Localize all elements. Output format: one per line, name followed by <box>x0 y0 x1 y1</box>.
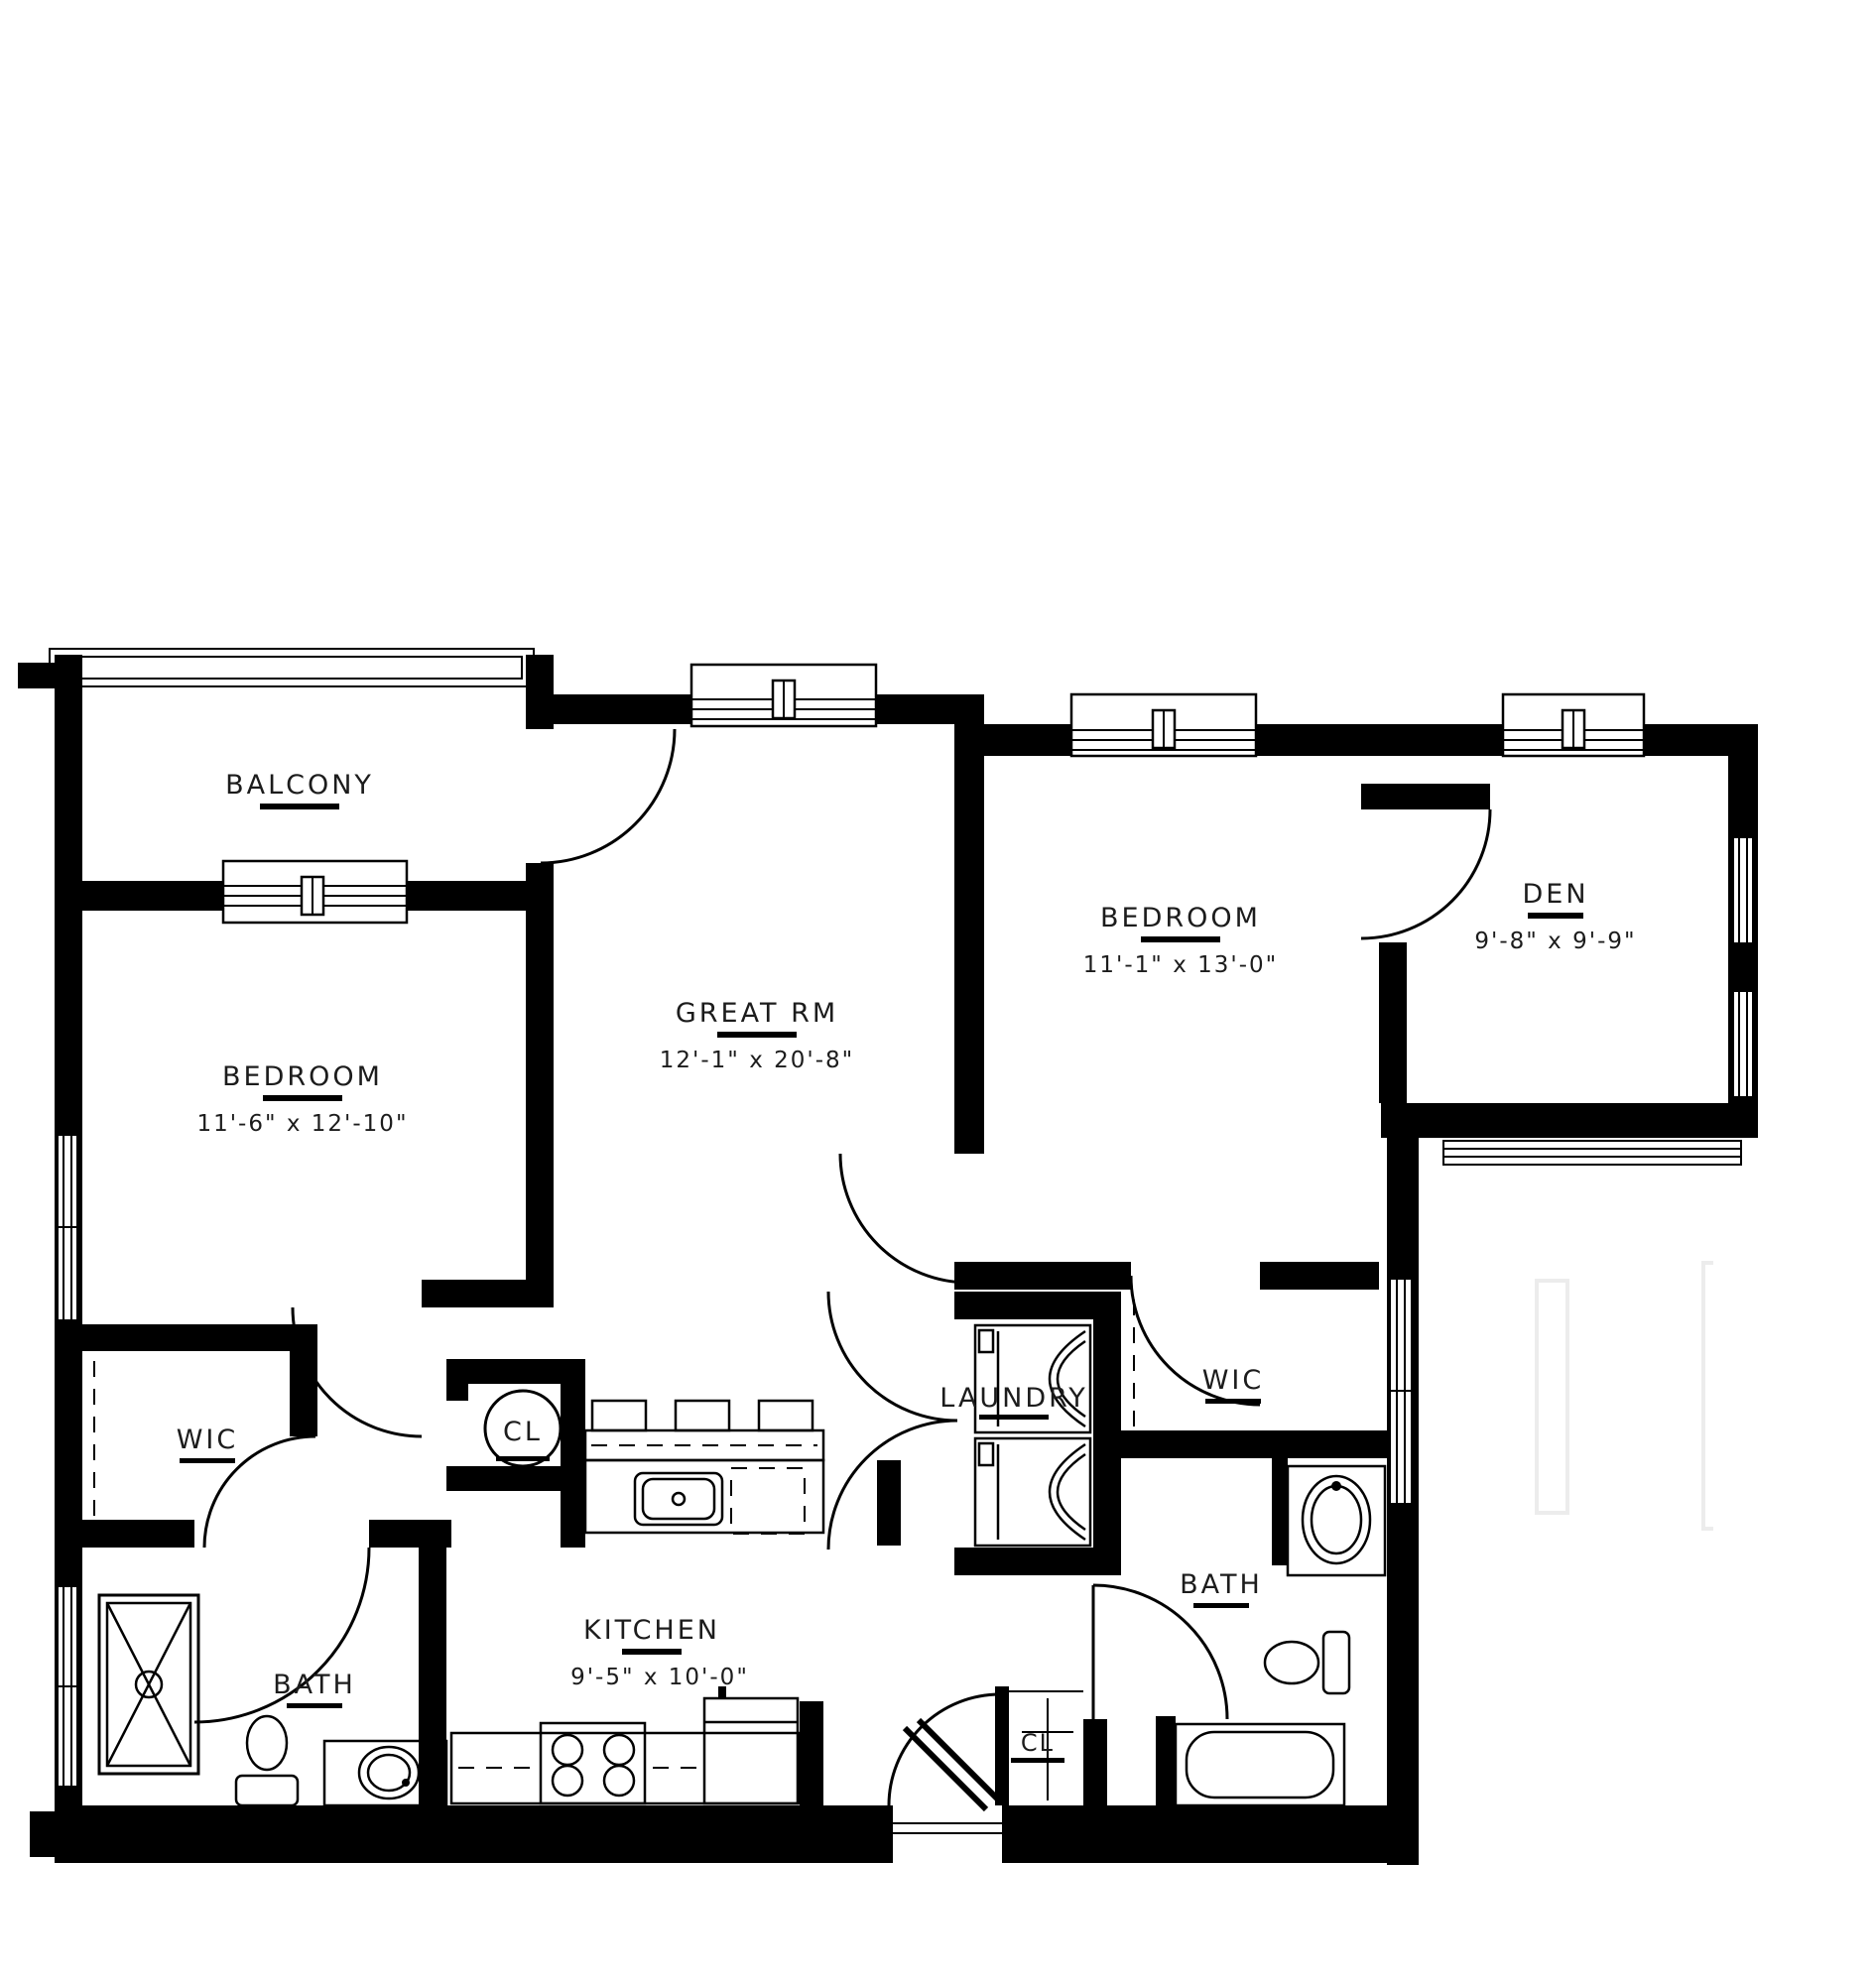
toilet-right <box>1265 1632 1349 1693</box>
entry-door <box>889 1694 1002 1863</box>
neighbor-faint-lines <box>1537 1263 1713 1529</box>
bar-stool <box>676 1401 729 1430</box>
bar-stool <box>592 1401 646 1430</box>
bath-right-label: BATH <box>1180 1569 1263 1600</box>
vanity-sink-right <box>1288 1466 1385 1575</box>
den-dims: 9'-8" x 9'-9" <box>1474 929 1636 954</box>
stove <box>541 1723 645 1803</box>
bedroom2-label: BEDROOM <box>1100 903 1261 933</box>
wall-top-left-stub <box>18 663 58 688</box>
den-label: DEN <box>1522 879 1588 910</box>
dryer <box>975 1438 1090 1546</box>
laundry-door-arc-top <box>828 1292 957 1421</box>
window-left-wall-lower <box>59 1587 76 1786</box>
laundry-label: LAUNDRY <box>939 1383 1087 1414</box>
window-left-wall-upper <box>59 1136 76 1319</box>
kitchen-label: KITCHEN <box>583 1615 720 1646</box>
den-bottom-trim <box>1443 1141 1741 1165</box>
window-bedroom2 <box>1071 694 1256 756</box>
kitchen-counter <box>451 1686 800 1803</box>
refrigerator <box>704 1686 798 1803</box>
shower <box>99 1595 198 1774</box>
wic-right-label: WIC <box>1202 1365 1265 1396</box>
den-door-arc <box>1361 809 1490 938</box>
window-right-wall <box>1391 1280 1411 1503</box>
fixtures <box>94 1300 1385 1805</box>
bedroom1-dims: 11'-6" x 12'-10" <box>196 1111 408 1137</box>
balcony-label: BALCONY <box>225 770 374 801</box>
kitchen-sink <box>635 1473 722 1525</box>
floor-plan-drawing: BALCONY BEDROOM 11'-6" x 12'-10" GREAT R… <box>0 0 1876 1984</box>
bedroom2-door-arc <box>840 1154 969 1283</box>
den-door-leaf <box>1361 784 1490 809</box>
windows <box>59 665 1752 1786</box>
window-den-right-upper <box>1734 838 1752 942</box>
window-den-right-lower <box>1734 992 1752 1096</box>
bar-stool <box>759 1401 813 1430</box>
bedroom2-dims: 11'-1" x 13'-0" <box>1083 952 1278 978</box>
den-left-wall <box>1379 942 1407 1103</box>
window-great-rm <box>691 665 876 726</box>
window-bedroom1 <box>223 861 407 923</box>
great-rm-label: GREAT RM <box>676 998 838 1029</box>
balcony-door-arc <box>541 729 675 863</box>
bathtub <box>1176 1724 1344 1805</box>
kitchen-dims: 9'-5" x 10'-0" <box>570 1665 749 1690</box>
balcony-railing <box>50 649 534 686</box>
bath-left-label: BATH <box>273 1670 356 1700</box>
cl-entry-label: CL <box>1021 1729 1055 1757</box>
wic-left-label: WIC <box>177 1425 239 1455</box>
kitchen-island <box>585 1401 823 1534</box>
great-rm-dims: 12'-1" x 20'-8" <box>660 1048 854 1073</box>
floor-plan: BALCONY BEDROOM 11'-6" x 12'-10" GREAT R… <box>0 0 1876 1984</box>
dishwasher <box>731 1468 805 1534</box>
bedroom1-label: BEDROOM <box>222 1061 383 1092</box>
window-den <box>1503 694 1644 756</box>
cl-center-label: CL <box>503 1417 543 1447</box>
toilet-left <box>236 1716 298 1805</box>
